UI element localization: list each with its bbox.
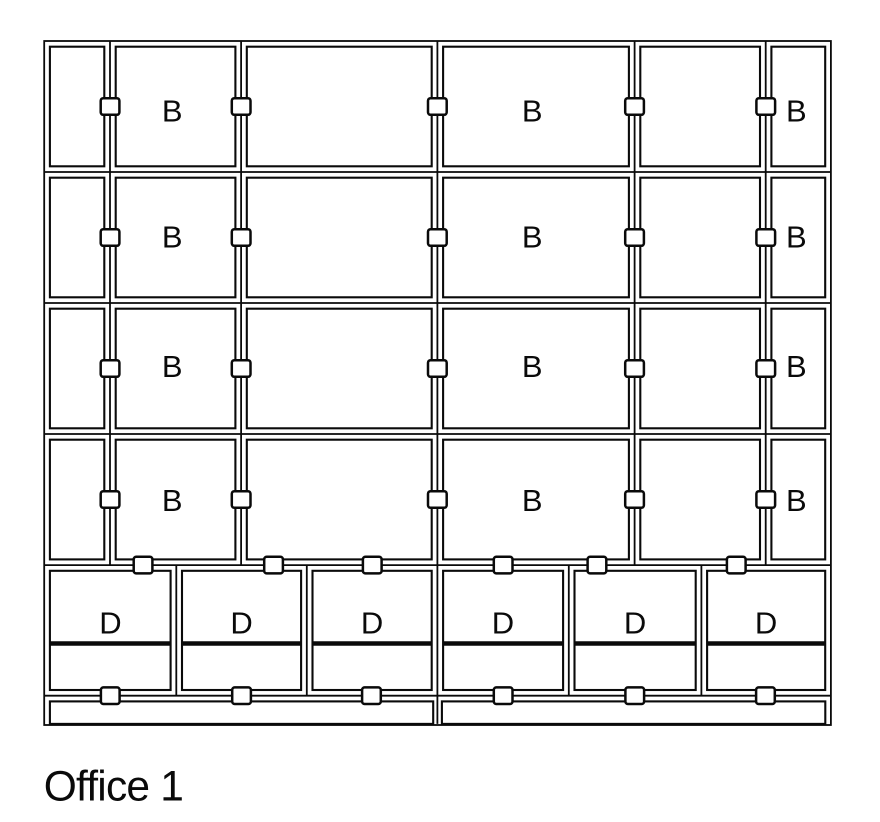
svg-text:B: B <box>522 220 543 255</box>
svg-text:D: D <box>361 606 383 641</box>
svg-text:D: D <box>492 606 514 641</box>
svg-text:B: B <box>162 220 183 255</box>
svg-text:D: D <box>624 606 646 641</box>
svg-text:B: B <box>162 349 183 384</box>
svg-text:B: B <box>786 483 807 518</box>
svg-text:D: D <box>755 606 777 641</box>
svg-text:B: B <box>786 349 807 384</box>
svg-text:B: B <box>522 483 543 518</box>
svg-text:D: D <box>99 606 121 641</box>
svg-text:B: B <box>162 483 183 518</box>
svg-text:B: B <box>786 220 807 255</box>
svg-text:B: B <box>522 94 543 129</box>
svg-text:Office 1: Office 1 <box>44 764 183 811</box>
svg-text:D: D <box>230 606 252 641</box>
svg-text:B: B <box>522 349 543 384</box>
svg-text:B: B <box>786 94 807 129</box>
svg-text:B: B <box>162 94 183 129</box>
